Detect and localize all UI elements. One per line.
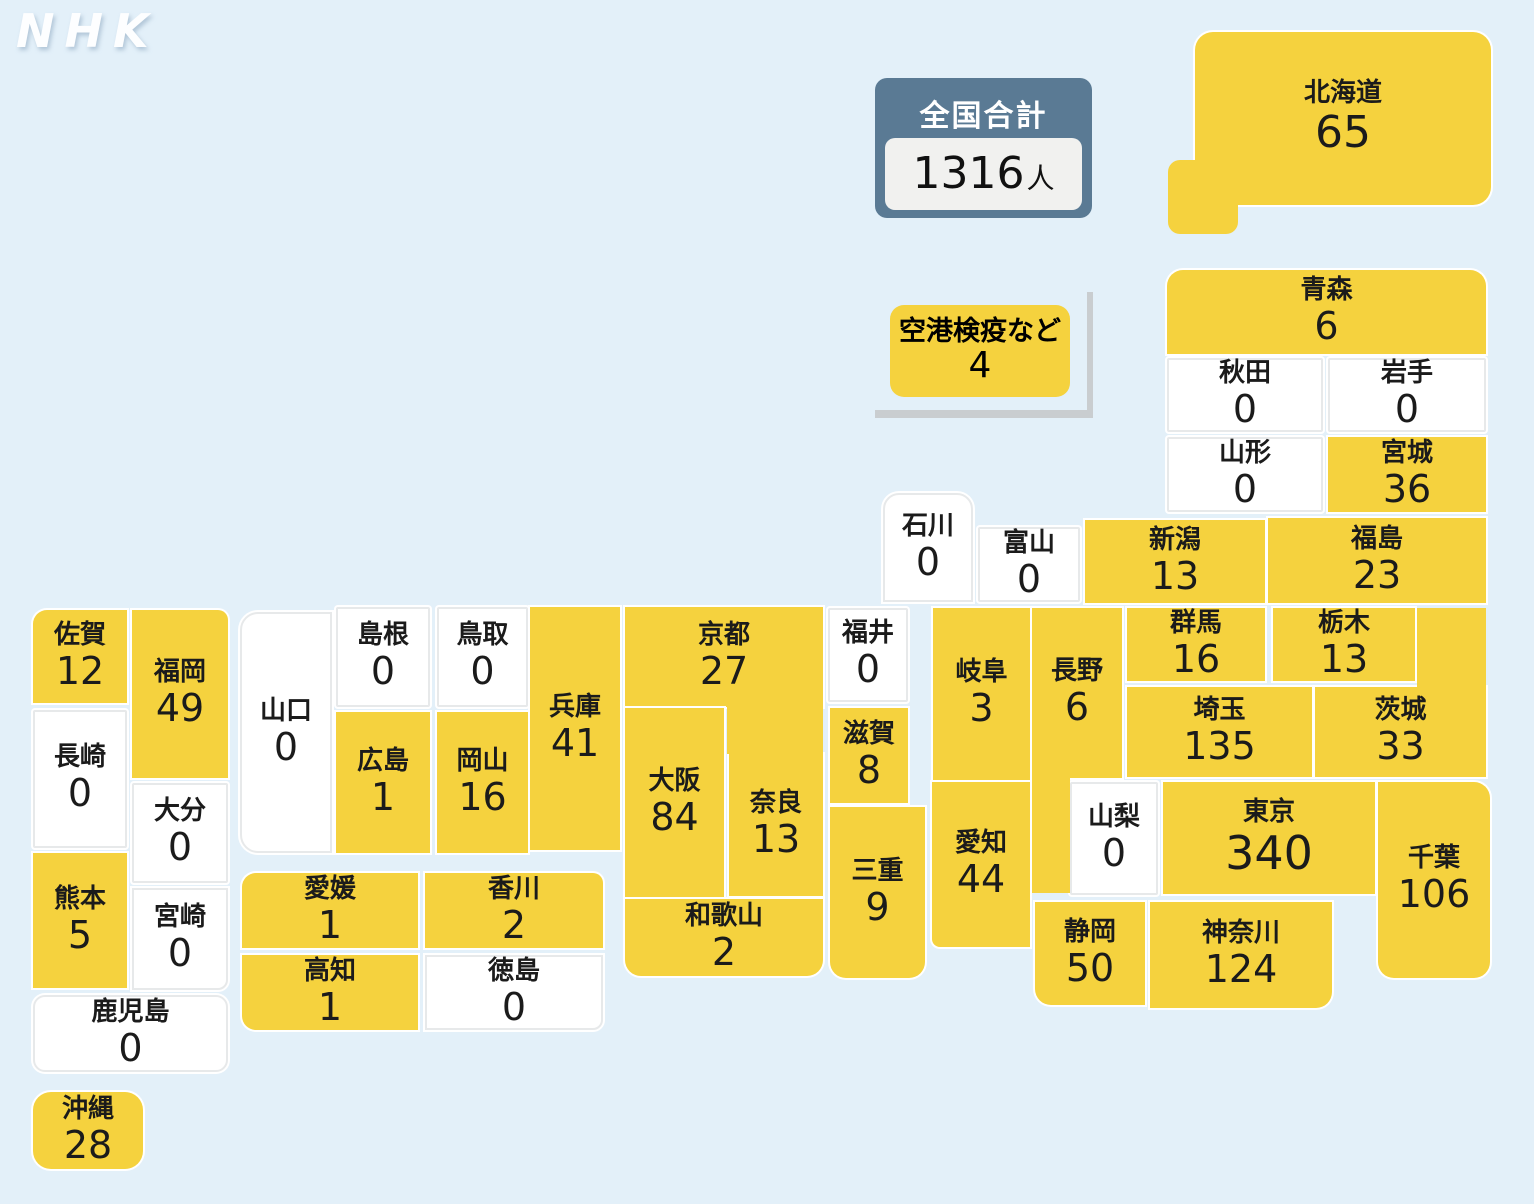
region-name: 岩手 <box>1381 359 1433 389</box>
airport-quarantine-value: 4 <box>969 347 992 385</box>
region-value: 33 <box>1376 726 1424 768</box>
region-kochi: 高知1 <box>242 955 418 1030</box>
region-value: 135 <box>1183 726 1256 768</box>
region-mie: 三重9 <box>830 807 925 978</box>
region-value: 0 <box>1233 469 1257 511</box>
region-value: 8 <box>857 750 881 792</box>
airport-bracket-horizontal <box>875 410 1093 418</box>
region-value: 0 <box>856 649 880 691</box>
region-kyoto: 京都27 <box>625 607 823 707</box>
airport-quarantine-box: 空港検疫など 4 <box>890 305 1070 397</box>
region-value: 44 <box>957 859 1005 901</box>
region-value: 65 <box>1315 109 1371 157</box>
region-name: 福井 <box>842 619 894 649</box>
region-name: 岐阜 <box>955 658 1007 688</box>
region-fukui: 福井0 <box>828 608 908 702</box>
region-saga: 佐賀12 <box>33 610 127 703</box>
region-value: 0 <box>1017 559 1041 601</box>
region-name: 鹿児島 <box>91 998 169 1028</box>
region-value: 6 <box>1314 306 1338 348</box>
region-name: 新潟 <box>1149 526 1201 556</box>
region-value: 13 <box>1151 556 1199 598</box>
region-osaka: 大阪84 <box>625 708 724 897</box>
region-name: 長野 <box>1051 657 1103 687</box>
region-name: 滋賀 <box>843 720 895 750</box>
region-gifu: 岐阜3 <box>933 608 1030 780</box>
national-total-unit: 人 <box>1026 157 1054 197</box>
region-name: 広島 <box>357 747 409 777</box>
region-name: 千葉 <box>1408 844 1460 874</box>
region-iwate: 岩手0 <box>1328 358 1486 432</box>
region-wakayama: 和歌山2 <box>625 899 823 976</box>
region-name: 島根 <box>357 621 409 651</box>
region-name: 宮崎 <box>154 903 206 933</box>
region-value: 0 <box>168 933 192 975</box>
region-name: 福島 <box>1351 525 1403 555</box>
region-nagano: 長野6 <box>1032 608 1122 778</box>
region-name: 北海道 <box>1304 79 1382 109</box>
region-value: 1 <box>318 905 342 947</box>
region-hyogo: 兵庫41 <box>530 607 620 850</box>
region-value: 0 <box>1233 389 1257 431</box>
region-chiba: 千葉106 <box>1378 782 1490 978</box>
region-value: 0 <box>470 651 494 693</box>
national-total-box: 全国合計 1316 人 <box>875 78 1092 218</box>
region-name: 三重 <box>851 857 903 887</box>
region-name: 神奈川 <box>1202 919 1280 949</box>
region-gunma: 群馬16 <box>1127 608 1265 681</box>
region-name: 長崎 <box>54 743 106 773</box>
region-value: 0 <box>118 1028 142 1070</box>
region-value: 124 <box>1205 949 1278 991</box>
region-name: 大阪 <box>648 767 700 797</box>
region-name: 秋田 <box>1219 359 1271 389</box>
region-name: 宮城 <box>1381 439 1433 469</box>
region-kagawa: 香川2 <box>425 873 603 948</box>
nagano-south-strip <box>1032 776 1070 893</box>
region-name: 愛媛 <box>304 875 356 905</box>
region-hokkaido: 北海道65 <box>1195 32 1491 205</box>
region-name: 香川 <box>488 875 540 905</box>
region-value: 49 <box>156 688 204 730</box>
region-name: 富山 <box>1003 529 1055 559</box>
region-tokushima: 徳島0 <box>425 955 603 1030</box>
region-okayama: 岡山16 <box>437 712 528 853</box>
region-name: 高知 <box>304 957 356 987</box>
region-value: 23 <box>1353 555 1401 597</box>
region-hiroshima: 広島1 <box>336 712 430 853</box>
region-name: 石川 <box>902 512 954 542</box>
region-name: 兵庫 <box>549 693 601 723</box>
region-akita: 秋田0 <box>1167 358 1323 432</box>
region-value: 0 <box>916 542 940 584</box>
region-name: 福岡 <box>154 658 206 688</box>
airport-bracket-vertical <box>1087 292 1093 418</box>
region-name: 山梨 <box>1088 803 1140 833</box>
region-value: 0 <box>371 651 395 693</box>
region-value: 13 <box>1320 639 1368 681</box>
region-name: 和歌山 <box>685 902 763 932</box>
region-miyazaki: 宮崎0 <box>132 888 228 990</box>
region-value: 106 <box>1398 874 1471 916</box>
kyoto-south-arm <box>727 705 823 754</box>
region-name: 群馬 <box>1170 609 1222 639</box>
region-oita: 大分0 <box>132 783 228 883</box>
region-aomori: 青森6 <box>1167 270 1486 354</box>
region-name: 栃木 <box>1318 609 1370 639</box>
region-name: 奈良 <box>750 789 802 819</box>
nhk-logo: NHK <box>16 4 159 58</box>
airport-quarantine-label: 空港検疫など <box>899 317 1061 347</box>
region-fukuoka: 福岡49 <box>132 610 228 778</box>
region-value: 0 <box>68 773 92 815</box>
region-saitama: 埼玉135 <box>1127 687 1312 777</box>
national-total-value-panel: 1316 人 <box>885 138 1082 210</box>
japan-covid-map: NHK 全国合計 1316 人 空港検疫など 4 北海道65青森6秋田0岩手0山… <box>0 0 1534 1204</box>
region-value: 41 <box>551 723 599 765</box>
region-value: 0 <box>274 727 298 769</box>
region-miyagi: 宮城36 <box>1328 437 1486 512</box>
region-kumamoto: 熊本5 <box>33 853 127 988</box>
region-name: 静岡 <box>1064 918 1116 948</box>
region-value: 1 <box>371 777 395 819</box>
region-value: 2 <box>712 932 736 974</box>
region-value: 28 <box>64 1125 112 1167</box>
region-yamanashi: 山梨0 <box>1070 782 1158 895</box>
region-name: 熊本 <box>54 885 106 915</box>
region-value: 2 <box>502 905 526 947</box>
ibaraki-north-arm <box>1417 608 1486 689</box>
region-name: 山口 <box>260 697 312 727</box>
region-value: 27 <box>700 651 748 693</box>
region-name: 東京 <box>1243 798 1295 828</box>
region-tochigi: 栃木13 <box>1273 608 1415 681</box>
region-name: 茨城 <box>1374 696 1426 726</box>
region-aichi: 愛知44 <box>932 782 1030 947</box>
region-value: 13 <box>752 819 800 861</box>
region-name: 佐賀 <box>54 621 106 651</box>
region-ehime: 愛媛1 <box>242 873 418 948</box>
region-okinawa: 沖縄28 <box>33 1092 143 1169</box>
region-value: 50 <box>1066 948 1114 990</box>
region-value: 0 <box>168 827 192 869</box>
region-ibaraki: 茨城33 <box>1315 687 1486 777</box>
region-tottori: 鳥取0 <box>437 607 528 707</box>
region-nara: 奈良13 <box>729 754 823 896</box>
region-fukushima: 福島23 <box>1268 518 1486 603</box>
region-niigata: 新潟13 <box>1085 520 1265 603</box>
region-tokyo: 東京340 <box>1163 782 1375 894</box>
region-shizuoka: 静岡50 <box>1035 902 1145 1005</box>
region-name: 埼玉 <box>1193 696 1245 726</box>
region-name: 鳥取 <box>456 621 508 651</box>
region-value: 84 <box>650 797 698 839</box>
national-total-value: 1316 <box>913 138 1025 210</box>
region-name: 山形 <box>1219 439 1271 469</box>
region-toyama: 富山0 <box>978 527 1080 602</box>
region-yamaguchi: 山口0 <box>240 612 332 853</box>
region-value: 0 <box>1102 833 1126 875</box>
region-name: 徳島 <box>488 957 540 987</box>
region-yamagata: 山形0 <box>1167 437 1323 512</box>
region-value: 9 <box>865 887 889 929</box>
region-shiga: 滋賀8 <box>830 708 908 803</box>
region-value: 0 <box>502 987 526 1029</box>
region-value: 6 <box>1065 687 1089 729</box>
region-kagoshima: 鹿児島0 <box>33 995 228 1072</box>
region-shimane: 島根0 <box>336 607 430 707</box>
region-value: 1 <box>318 987 342 1029</box>
region-kanagawa: 神奈川124 <box>1150 902 1332 1008</box>
region-ishikawa: 石川0 <box>883 493 973 602</box>
region-value: 340 <box>1225 828 1313 879</box>
region-value: 0 <box>1395 389 1419 431</box>
region-value: 5 <box>68 915 92 957</box>
region-name: 沖縄 <box>62 1095 114 1125</box>
region-nagasaki: 長崎0 <box>33 710 127 848</box>
national-total-label: 全国合計 <box>875 91 1092 135</box>
region-value: 36 <box>1383 469 1431 511</box>
region-name: 岡山 <box>456 747 508 777</box>
region-value: 3 <box>969 688 993 730</box>
region-name: 大分 <box>154 797 206 827</box>
region-name: 京都 <box>698 621 750 651</box>
region-value: 12 <box>56 651 104 693</box>
region-name: 青森 <box>1300 276 1352 306</box>
region-name: 愛知 <box>955 829 1007 859</box>
region-value: 16 <box>1172 639 1220 681</box>
hokkaido-peninsula <box>1168 160 1238 234</box>
region-value: 16 <box>458 777 506 819</box>
